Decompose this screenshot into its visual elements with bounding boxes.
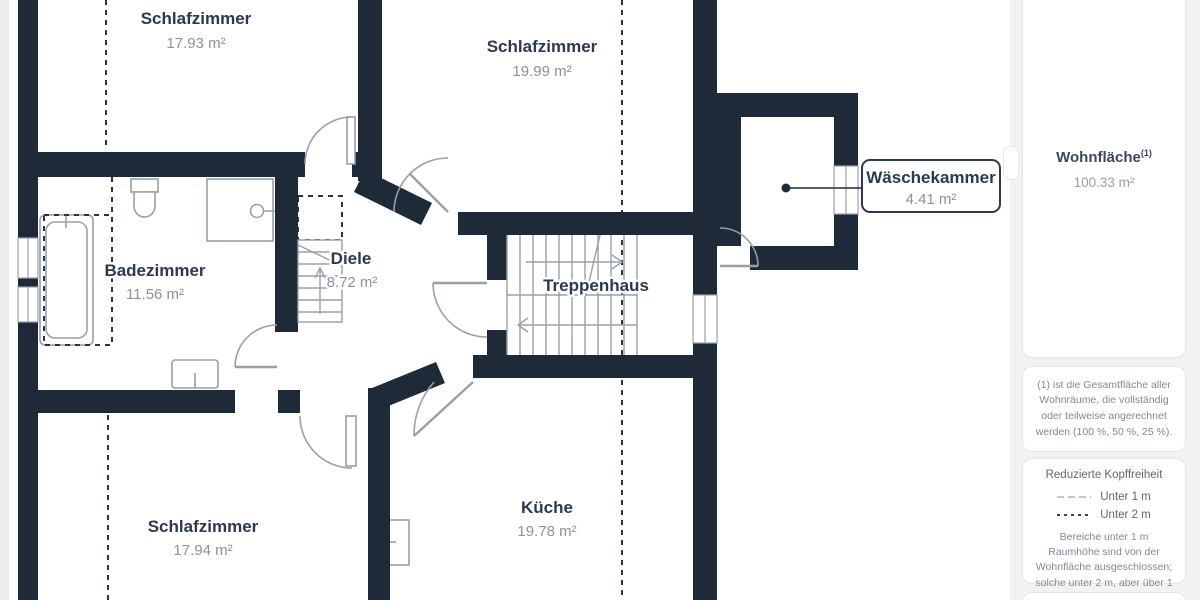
toilet-bowl [134,192,155,217]
window [18,238,38,278]
next-card-edge [1022,592,1186,600]
room-label: Schlafzimmer [487,37,598,56]
callout-anchor-dot [782,184,791,193]
floor-plan-canvas: Wäschekammer 4.41 m² Schlafzimmer 17.93 … [0,0,1010,600]
footnote-marker: (1) [1141,148,1152,158]
room-label: Schlafzimmer [141,9,252,28]
footnote-card: (1) ist die Gesamtfläche aller Wohnräume… [1022,366,1186,452]
room-label: Diele [331,249,372,268]
wall-stair-left-upper [487,212,507,280]
bathtub-inner [46,222,87,338]
living-area-title-text: Wohnfläche [1056,149,1141,166]
room-label: Treppenhaus [543,276,649,295]
wall-bed3-kitchen [368,388,390,600]
living-area-value: 100.33 m² [1074,175,1135,190]
legend-card: Reduzierte Kopffreiheit Unter 1 m Unter … [1022,458,1186,584]
room-area: 8.72 m² [327,274,378,291]
wall-laundry-left [717,117,741,246]
door-arc-stairwell [433,283,487,337]
room-area: 19.78 m² [517,523,576,540]
room-area: 17.93 m² [166,35,225,52]
room-label: Küche [521,498,573,517]
dash-line-sample [1057,496,1091,498]
door-arc-bathroom [235,325,277,367]
legend-row-under-2m: Unter 2 m [1057,509,1151,521]
living-area-title: Wohnfläche(1) [1056,148,1152,166]
floorplan-app: Wäschekammer 4.41 m² Schlafzimmer 17.93 … [0,0,1200,600]
room-area: 11.56 m² [126,286,184,303]
wall-diagonal-bottom [372,362,445,409]
wall-diagonal-top [354,170,432,225]
wall-bath-bottom-stub [278,390,300,413]
living-area-card: Wohnfläche(1) 100.33 m² [1022,0,1186,358]
floor-plan-svg: Wäschekammer 4.41 m² Schlafzimmer 17.93 … [0,0,1010,600]
legend-label: Unter 1 m [1100,491,1151,503]
door-arc-bedroom3 [300,416,352,468]
door-arc-bedroom1 [305,117,351,164]
window [693,295,717,343]
wall-bed1-bottom [18,152,305,177]
door-leaf-bedroom3 [346,416,356,466]
door-leaf-bedroom1 [347,117,355,164]
wall-between-bedrooms [358,0,382,181]
staircase-main [507,235,637,355]
wall-stair-left-lower [487,330,507,378]
wall-bath-bottom [18,390,235,413]
room-area: 4.41 m² [906,191,957,208]
laundry-callout: Wäschekammer 4.41 m² [782,160,1001,212]
window [18,287,38,322]
window [834,166,858,214]
legend-note: Bereiche unter 1 m Raumhöhe sind von der… [1033,530,1175,600]
canvas-edge [0,0,9,600]
footnote-text: (1) ist die Gesamtfläche aller Wohnräume… [1035,378,1173,441]
room-label: Wäschekammer [866,168,996,187]
sidebar-collapse-handle[interactable] [1003,146,1019,180]
room-label: Schlafzimmer [148,517,259,536]
room-area: 19.99 m² [512,63,571,80]
wall-bath-right [275,177,298,332]
info-sidebar: Wohnfläche(1) 100.33 m² (1) ist die Gesa… [1010,0,1200,600]
legend-row-under-1m: Unter 1 m [1057,491,1151,503]
shower-drain [251,205,264,218]
room-area: 17.94 m² [173,542,232,559]
legend-title: Reduzierte Kopffreiheit [1046,469,1163,481]
wall-laundry-top [717,93,858,117]
room-label: Badezimmer [104,261,205,280]
toilet-tank [131,179,158,192]
dashed-under2m-diele [298,196,342,240]
legend-label: Unter 2 m [1100,509,1151,521]
fixtures-layer [40,179,409,565]
wall-kitchen-top [473,355,717,378]
dotted-line-sample [1057,514,1091,517]
